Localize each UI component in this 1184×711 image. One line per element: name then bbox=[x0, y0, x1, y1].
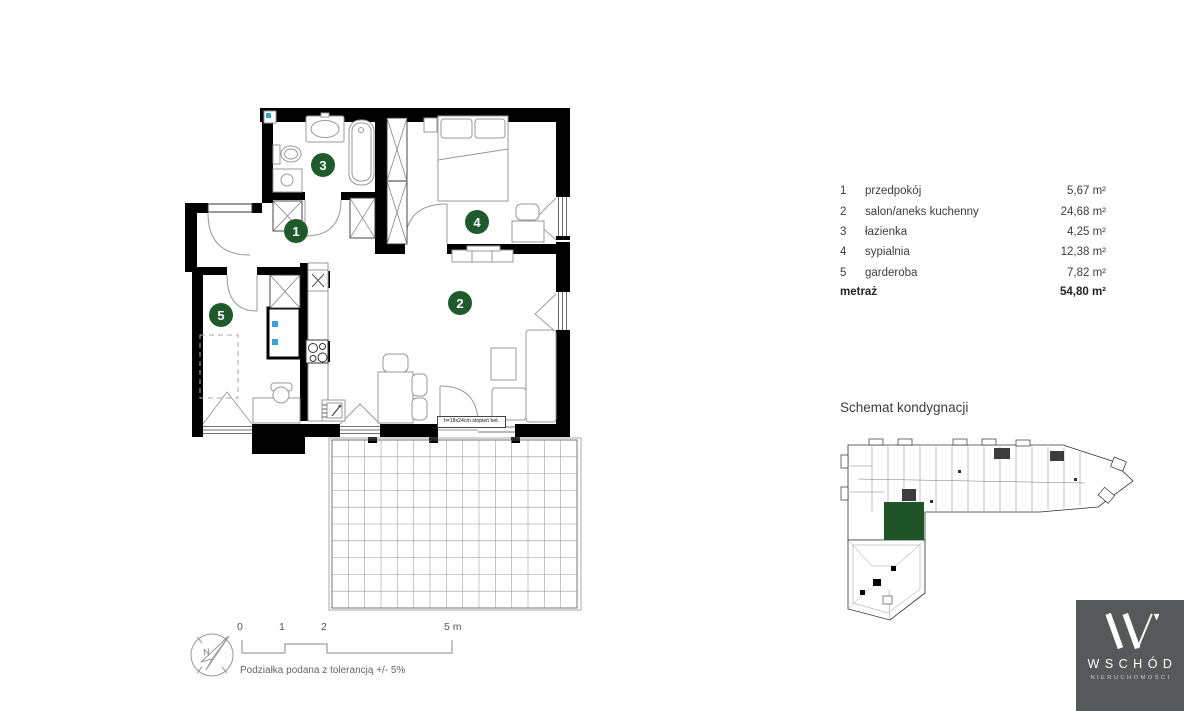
legend-num: 2 bbox=[840, 206, 865, 218]
legend-num: 4 bbox=[840, 246, 865, 258]
legend-area: 7,82 m² bbox=[1067, 267, 1106, 279]
room-marker-4: 4 bbox=[465, 210, 489, 234]
legend-area: 12,38 m² bbox=[1061, 246, 1106, 258]
scale-tolerance-note: Podziałka podana z tolerancją +/- 5% bbox=[240, 665, 405, 676]
dining-table bbox=[378, 372, 413, 423]
legend-name: sypialnia bbox=[865, 246, 1061, 258]
floor-plan-drawing bbox=[0, 0, 1184, 711]
scale-tick-0: 0 bbox=[237, 621, 243, 633]
room-marker-1: 1 bbox=[284, 219, 308, 243]
kitchen bbox=[306, 263, 345, 421]
doors bbox=[208, 200, 478, 424]
logo-tagline-text: NIERUCHOMOŚCI bbox=[1090, 675, 1171, 681]
legend-name: salon/aneks kuchenny bbox=[865, 206, 1061, 218]
scale-bar bbox=[242, 640, 452, 653]
brand-logo: WSCHÓD NIERUCHOMOŚCI bbox=[1076, 600, 1184, 711]
living-furniture bbox=[378, 330, 556, 423]
sofa bbox=[526, 330, 556, 422]
legend-total-row: metraż 54,80 m² bbox=[840, 283, 1106, 302]
legend-row: 5 garderoba 7,82 m² bbox=[840, 263, 1106, 283]
room-legend: 1 przedpokój 5,67 m² 2 salon/aneks kuche… bbox=[840, 181, 1106, 302]
compass-icon bbox=[191, 634, 233, 676]
schematic-title: Schemat kondygnacji bbox=[840, 400, 968, 415]
room-marker-5: 5 bbox=[209, 303, 233, 327]
legend-num: 1 bbox=[840, 185, 865, 197]
total-label: metraż bbox=[840, 286, 1060, 298]
toilet bbox=[273, 145, 280, 164]
legend-row: 1 przedpokój 5,67 m² bbox=[840, 181, 1106, 201]
total-value: 54,80 m² bbox=[1060, 286, 1106, 298]
legend-area: 24,68 m² bbox=[1061, 206, 1106, 218]
legend-name: garderoba bbox=[865, 267, 1067, 279]
coffee-table bbox=[491, 348, 516, 380]
scale-tick-1: 1 bbox=[279, 621, 285, 633]
plumbing-shaft bbox=[268, 308, 300, 358]
legend-name: przedpokój bbox=[865, 185, 1067, 197]
building-schematic bbox=[841, 439, 1133, 620]
legend-area: 5,67 m² bbox=[1067, 185, 1106, 197]
logo-brand-text: WSCHÓD bbox=[1088, 657, 1178, 671]
bedroom-furniture bbox=[424, 116, 544, 262]
highlighted-unit bbox=[884, 502, 924, 540]
step-note: h=18x24cm stopień bet. bbox=[437, 416, 506, 428]
legend-area: 4,25 m² bbox=[1067, 226, 1106, 238]
legend-num: 5 bbox=[840, 267, 865, 279]
legend-row: 3 łazienka 4,25 m² bbox=[840, 222, 1106, 242]
radiator bbox=[452, 250, 513, 262]
legend-name: łazienka bbox=[865, 226, 1067, 238]
legend-row: 4 sypialnia 12,38 m² bbox=[840, 242, 1106, 262]
scale-tick-5m: 5 m bbox=[444, 621, 462, 633]
legend-num: 3 bbox=[840, 226, 865, 238]
room-marker-2: 2 bbox=[448, 291, 472, 315]
bathroom-fixtures bbox=[264, 111, 374, 192]
room-marker-3: 3 bbox=[311, 153, 335, 177]
legend-row: 2 salon/aneks kuchenny 24,68 m² bbox=[840, 201, 1106, 221]
logo-w-monogram-icon bbox=[1101, 612, 1159, 650]
terrace bbox=[329, 438, 581, 610]
page: 1 2 3 4 5 h=18x24cm stopień bet. 1 przed… bbox=[0, 0, 1184, 711]
bedroom-desk bbox=[512, 221, 544, 242]
scale-tick-2: 2 bbox=[321, 621, 327, 633]
